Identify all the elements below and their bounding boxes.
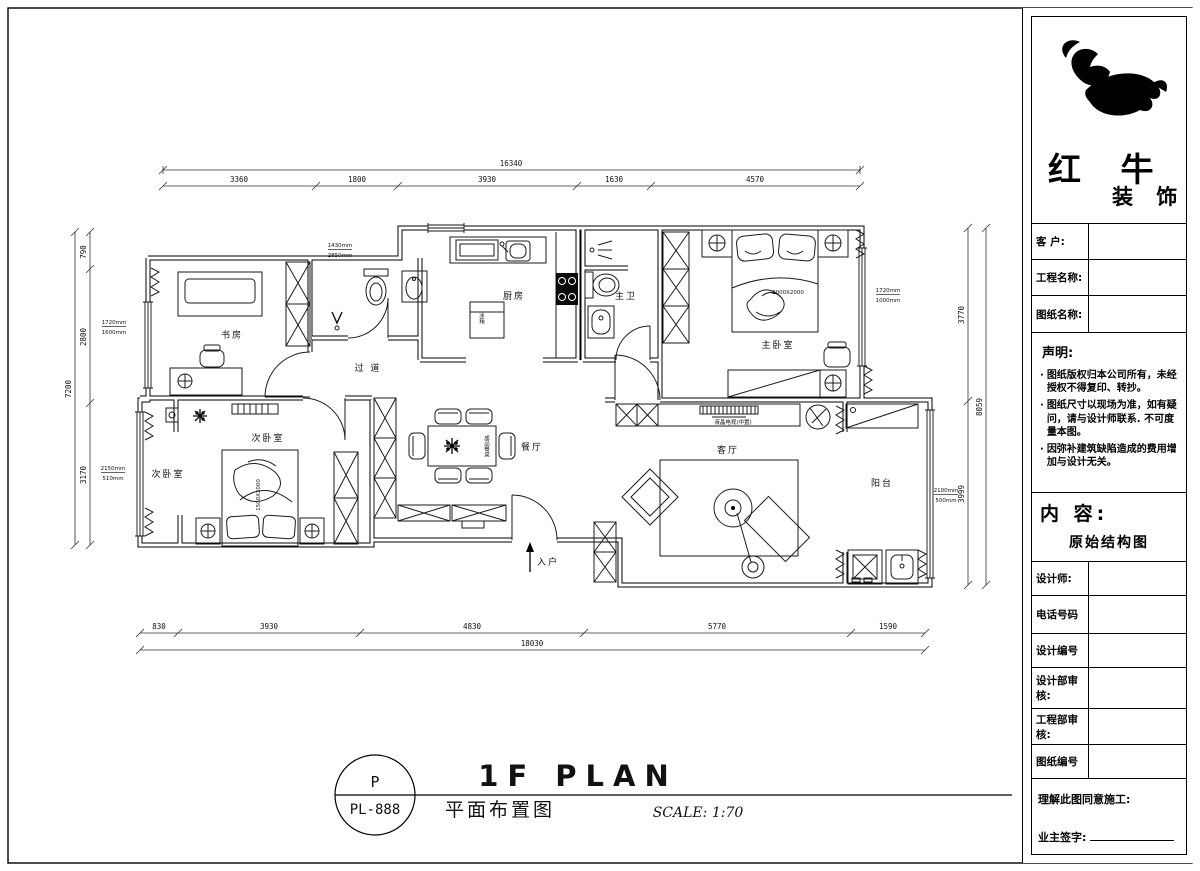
svg-text:1590: 1590 [879, 622, 898, 631]
svg-text:3170: 3170 [79, 465, 88, 484]
field-designer: 设计师: [1032, 561, 1186, 595]
dim-bottom-segments: 830 3930 4830 5770 1590 [136, 622, 929, 637]
svg-text:500mm: 500mm [935, 498, 956, 504]
dim-right-segments: 3770 3999 [957, 224, 972, 589]
field-project-name: 工程名称: [1032, 259, 1186, 295]
window-bedroom2-left [135, 412, 145, 536]
company-name-bottom: 装 饰 [1112, 181, 1185, 211]
dim-top-overall: 16340 [159, 159, 864, 174]
stamp-letter: P [370, 773, 379, 791]
entry-arrow-icon [526, 542, 534, 572]
field-design-dept-review-label: 设计部审核: [1032, 668, 1089, 708]
furniture-study [170, 272, 262, 395]
label-bedroom2-a: 次卧室 [251, 432, 284, 444]
floor-drain-icon [332, 312, 342, 323]
label-balcony: 阳台 [871, 477, 893, 489]
label-bedroom2-b: 次卧室 [151, 468, 184, 480]
svg-text:5770: 5770 [708, 622, 727, 631]
company-logo-box: 红 牛 装 饰 [1032, 17, 1186, 223]
svg-text:1720mm: 1720mm [876, 288, 901, 294]
svg-text:1720mm: 1720mm [102, 320, 127, 326]
drawing-sheet: 书房 过 道 厨房 主卫 主卧室 次卧室 次卧室 餐厅 客厅 阳台 入户 冰箱 … [0, 0, 1200, 871]
label-entry: 入户 [537, 556, 559, 568]
cabinet-entry [594, 522, 616, 582]
furniture-master-bath [585, 241, 619, 338]
field-sheet-number: 图纸编号 [1032, 744, 1186, 778]
annotation-study-window: 1720mm 1600mm [102, 320, 127, 336]
svg-text:2150mm: 2150mm [101, 466, 126, 472]
statement-item: 因弥补建筑缺陷造成的费用增加与设计无关。 [1040, 443, 1180, 469]
svg-text:18030: 18030 [521, 639, 544, 648]
svg-text:1630: 1630 [605, 175, 624, 184]
svg-text:7200: 7200 [64, 379, 73, 398]
cabinet-balcony [846, 404, 918, 428]
field-project-name-label: 工程名称: [1032, 260, 1089, 295]
window-master-right [857, 248, 867, 366]
field-design-number-label: 设计编号 [1032, 634, 1089, 667]
field-phone: 电话号码 [1032, 595, 1186, 633]
svg-text:4570: 4570 [746, 175, 765, 184]
label-kitchen: 厨房 [503, 290, 525, 302]
window-kitchen-top [428, 223, 464, 233]
dim-bottom-overall: 18030 [136, 639, 929, 654]
annotation-bath-wall: 1430mm 2850mm [328, 243, 353, 259]
svg-text:2850mm: 2850mm [328, 253, 353, 259]
door-bedroom2 [303, 398, 345, 440]
furniture-balcony [848, 550, 918, 584]
field-eng-dept-review: 工程部审核: [1032, 708, 1186, 744]
tv-bench-icon [232, 404, 278, 414]
fridge-icon [470, 302, 504, 338]
content-value: 原始结构图 [1040, 532, 1178, 552]
svg-text:790: 790 [79, 245, 88, 259]
label-living: 客厅 [717, 444, 739, 456]
door-study [265, 352, 310, 397]
shower-icon [598, 241, 612, 259]
dim-top-segments: 3360 1800 3930 1630 4570 [159, 175, 864, 190]
svg-text:3930: 3930 [260, 622, 279, 631]
field-designer-label: 设计师: [1032, 562, 1089, 595]
window-study-left [143, 302, 153, 388]
wardrobe-master [663, 232, 689, 343]
field-drawing-name: 图纸名称: [1032, 295, 1186, 332]
fan-table-icon [806, 405, 830, 429]
wardrobe-study [286, 262, 310, 346]
signature-box: 理解此图同意施工: 业主签字: [1032, 778, 1186, 854]
furniture-master-bedroom [702, 230, 850, 397]
svg-text:510mm: 510mm [102, 476, 123, 482]
plan-scale: SCALE: 1:70 [653, 805, 744, 821]
furniture-guest-bath [332, 269, 427, 330]
table-plant-icon [444, 438, 460, 454]
svg-text:4830: 4830 [463, 622, 482, 631]
label-study: 书房 [221, 329, 243, 341]
statement-box: 声明: 图纸版权归本公司所有，未经授权不得复印、转抄。 图纸尺寸以现场为准，如有… [1032, 332, 1186, 492]
sheet-border [8, 8, 1192, 863]
annotation-master-window: 1720mm 1000mm [876, 288, 901, 304]
plant-icon [193, 409, 207, 423]
label-master-bedroom: 主卧室 [761, 339, 794, 351]
label-master-bed-size: 2000X2000 [772, 290, 804, 296]
washing-machine-icon [848, 550, 882, 584]
field-drawing-name-label: 图纸名称: [1032, 296, 1089, 332]
cabinet-tv-side [616, 404, 658, 426]
content-box: 内 容: 原始结构图 [1032, 492, 1186, 561]
title-block-panel: 红 牛 装 饰 客 户: 工程名称: 图纸名称: 声明: 图纸版权归本公司所有，… [1022, 8, 1193, 863]
stove-icon [556, 273, 578, 305]
stamp-number: PL-888 [350, 802, 401, 818]
floor-plan-canvas: 书房 过 道 厨房 主卫 主卧室 次卧室 次卧室 餐厅 客厅 阳台 入户 冰箱 … [0, 0, 1200, 871]
annotation-bedroom2-window: 2150mm 510mm [101, 466, 126, 482]
svg-text:8059: 8059 [975, 398, 984, 416]
label-fridge: 冰箱 [478, 311, 485, 325]
svg-text:1000mm: 1000mm [876, 298, 901, 304]
plan-subtitle: 平面布置图 [445, 799, 555, 821]
title-block-inner: 红 牛 装 饰 客 户: 工程名称: 图纸名称: 声明: 图纸版权归本公司所有，… [1031, 16, 1187, 855]
svg-text:3770: 3770 [957, 305, 966, 324]
label-dining: 餐厅 [521, 441, 543, 453]
signature-line1: 理解此图同意施工: [1038, 791, 1180, 807]
annotation-balcony-window: 2100mm 500mm [934, 488, 959, 504]
cabinet-dining-left [374, 398, 396, 518]
dimensions: 16340 3360 1800 3930 1630 4570 830 3930 … [64, 159, 990, 654]
svg-text:2800: 2800 [79, 327, 88, 346]
label-second-bed-size: 1500X2000 [256, 479, 262, 511]
furniture-bedroom2 [166, 404, 324, 546]
wardrobe-bedroom2 [334, 452, 358, 544]
bull-logo-icon [1046, 29, 1170, 129]
svg-text:16340: 16340 [500, 159, 523, 168]
field-design-number: 设计编号 [1032, 633, 1186, 667]
window-balcony-right [925, 410, 935, 578]
drawing-title: P PL-888 1F PLAN 平面布置图 SCALE: 1:70 [335, 755, 1012, 835]
signature-line2: 业主签字: [1038, 831, 1086, 844]
furniture-dining [409, 409, 515, 483]
svg-text:3930: 3930 [478, 175, 497, 184]
window-annotations: 1720mm 1600mm 1430mm 2850mm 1720mm 1000m… [101, 243, 959, 504]
statement-item: 图纸尺寸以现场为准，如有疑问，请与设计师联系. 不可度量本图。 [1040, 399, 1180, 439]
owner-signature-field[interactable] [1090, 830, 1174, 841]
svg-text:3360: 3360 [230, 175, 249, 184]
label-corridor: 过 道 [355, 362, 382, 374]
content-label: 内 容: [1040, 499, 1178, 526]
dim-left-segments: 790 2800 3170 [79, 228, 94, 549]
statement-item: 图纸版权归本公司所有，未经授权不得复印、转抄。 [1040, 369, 1180, 395]
cabinets [286, 232, 918, 582]
label-master-bath: 主卫 [615, 290, 637, 302]
statement-heading: 声明: [1042, 342, 1180, 361]
field-sheet-number-label: 图纸编号 [1032, 745, 1089, 778]
shoe-cabinets [398, 505, 506, 528]
label-tv: 液晶电视(中置) [714, 418, 751, 426]
door-entry [512, 495, 557, 540]
dim-right-overall: 8059 [975, 224, 990, 589]
furniture-living [622, 404, 830, 578]
field-phone-label: 电话号码 [1032, 596, 1089, 633]
svg-text:3999: 3999 [957, 485, 966, 503]
door-guest-bath [348, 298, 388, 338]
svg-text:1600mm: 1600mm [102, 330, 127, 336]
balcony-sink-icon [886, 550, 918, 584]
field-client-label: 客 户: [1032, 224, 1089, 259]
tv-icon [700, 406, 758, 417]
svg-text:2100mm: 2100mm [934, 488, 959, 494]
dim-left-overall: 7200 [64, 228, 79, 549]
field-design-dept-review: 设计部审核: [1032, 667, 1186, 708]
svg-text:830: 830 [152, 622, 166, 631]
field-eng-dept-review-label: 工程部审核: [1032, 709, 1089, 744]
svg-text:1800: 1800 [348, 175, 367, 184]
svg-text:1430mm: 1430mm [328, 243, 353, 249]
field-client: 客 户: [1032, 223, 1186, 259]
label-dining-table: 成品餐桌 [483, 434, 490, 459]
plan-title: 1F PLAN [478, 759, 678, 793]
